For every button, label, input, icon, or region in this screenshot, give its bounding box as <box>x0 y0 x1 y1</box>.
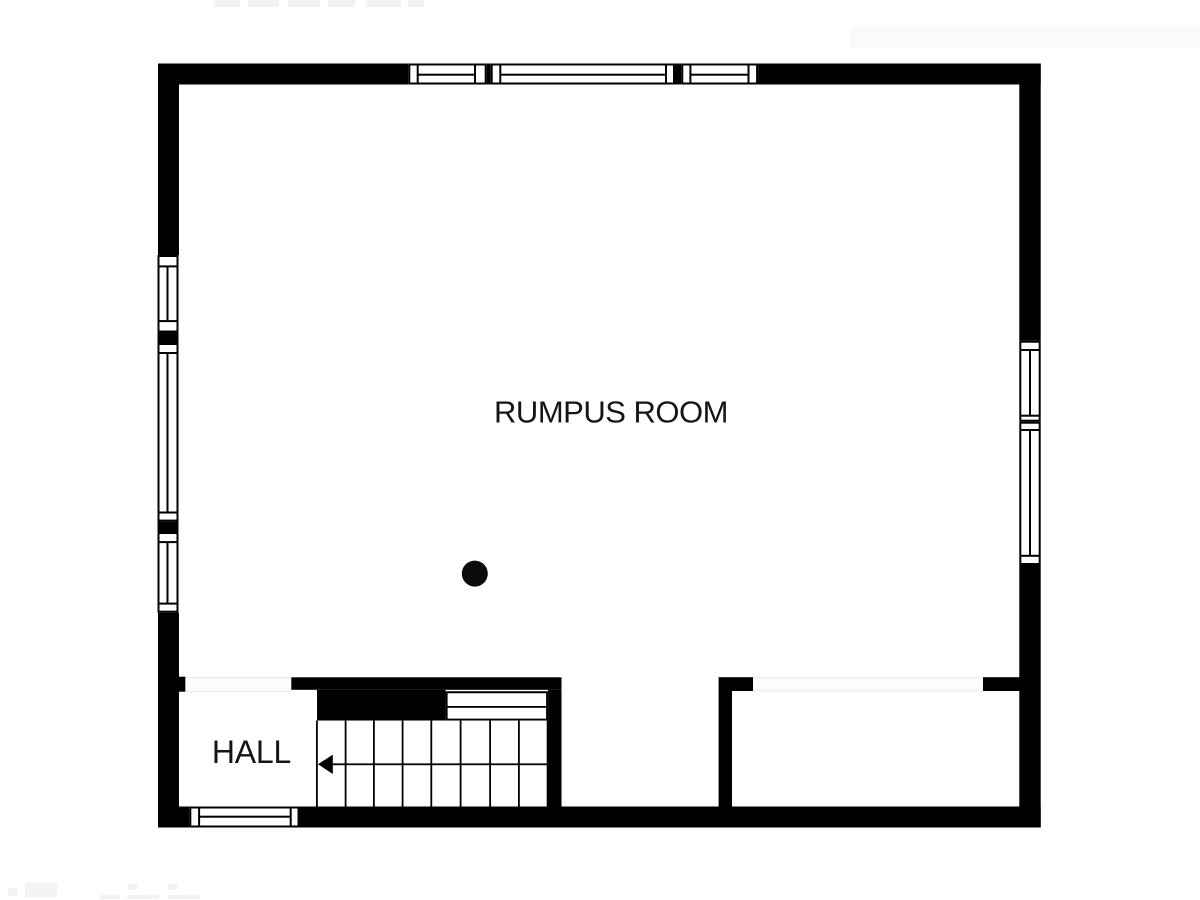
svg-text:HALL: HALL <box>212 734 291 770</box>
svg-text:RUMPUS ROOM: RUMPUS ROOM <box>494 395 728 430</box>
